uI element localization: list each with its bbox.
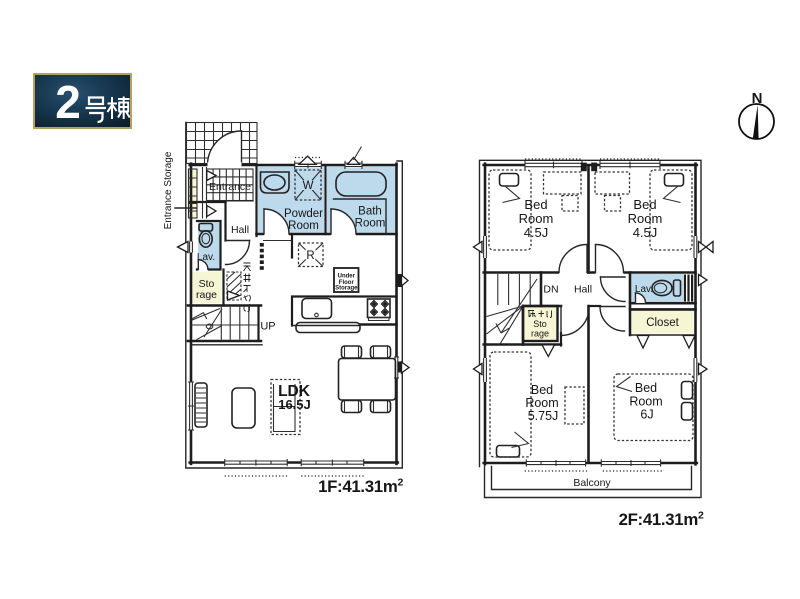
svg-text:Sto: Sto (533, 319, 547, 329)
svg-text:Room: Room (519, 211, 554, 226)
svg-text:Bed: Bed (531, 383, 553, 397)
svg-text:Room: Room (628, 211, 663, 226)
svg-text:1F:41.31m2: 1F:41.31m2 (318, 477, 403, 497)
svg-text:Lav.: Lav. (635, 284, 653, 295)
svg-text:Bath: Bath (358, 206, 382, 218)
svg-text:DN: DN (543, 284, 558, 296)
svg-text:Closet: Closet (646, 317, 679, 329)
svg-text:Hall: Hall (574, 284, 592, 296)
svg-text:4.5J: 4.5J (633, 225, 658, 240)
svg-text:N: N (752, 90, 763, 107)
svg-text:5.75J: 5.75J (528, 409, 559, 423)
svg-text:Room: Room (629, 395, 662, 409)
svg-text:Entrance: Entrance (209, 181, 251, 193)
svg-text:W: W (303, 180, 314, 192)
svg-text:Storage: Storage (335, 286, 358, 292)
svg-text:Under: Under (338, 274, 356, 280)
svg-text:2: 2 (55, 76, 81, 128)
svg-text:rage: rage (196, 289, 217, 301)
svg-text:Bed: Bed (524, 197, 547, 212)
svg-text:Room: Room (355, 218, 386, 230)
svg-text:4.5J: 4.5J (524, 225, 549, 240)
svg-text:Hall: Hall (231, 224, 249, 236)
svg-text:Room: Room (525, 396, 558, 410)
svg-text:rage: rage (531, 329, 549, 339)
svg-text:Powder: Powder (284, 208, 323, 220)
svg-text:Balcony: Balcony (573, 477, 611, 489)
svg-text:Bed: Bed (635, 381, 657, 395)
svg-text:Lav.: Lav. (197, 252, 215, 263)
svg-text:16.5J: 16.5J (278, 397, 311, 412)
svg-text:6J: 6J (640, 408, 653, 422)
svg-text:Entrance Storage: Entrance Storage (163, 151, 174, 229)
svg-text:Bed: Bed (633, 197, 656, 212)
svg-text:UP: UP (260, 321, 275, 333)
svg-text:Room: Room (288, 220, 319, 232)
svg-text:2F:41.31m2: 2F:41.31m2 (619, 510, 704, 530)
